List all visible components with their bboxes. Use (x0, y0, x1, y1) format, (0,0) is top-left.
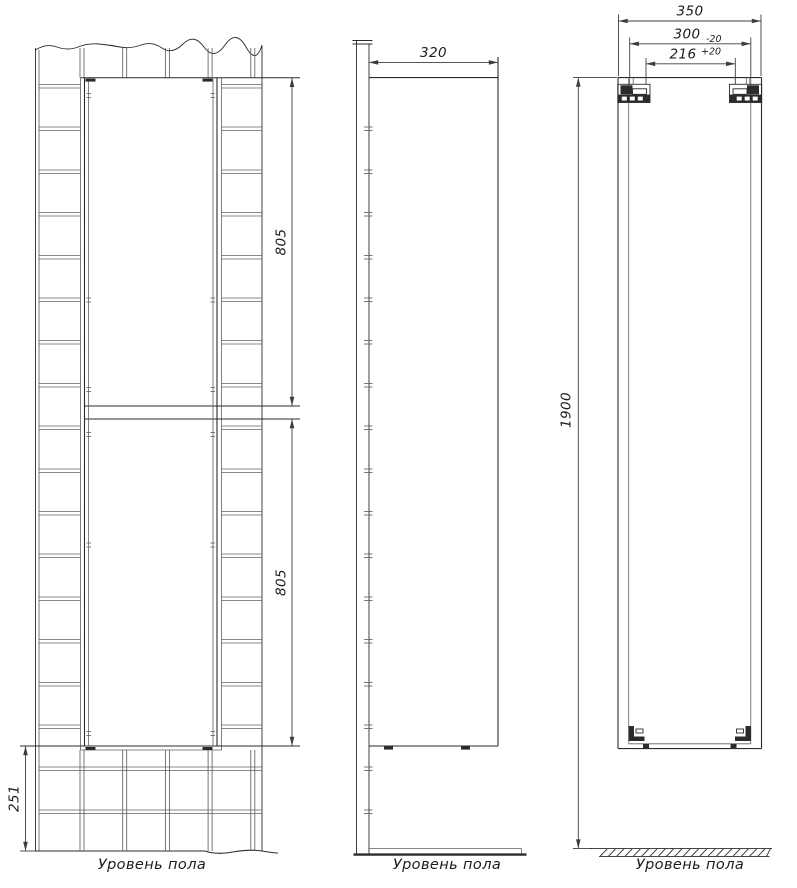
wall-break-line-top (36, 37, 263, 55)
door-top-right-plate (203, 79, 213, 82)
back-view: 350 300 -20 216 +20 1900 (559, 4, 773, 874)
technical-drawing: 805 805 251 Уровень пола (0, 0, 797, 888)
joint-line (666, 849, 674, 857)
dim-tolerance-216: +20 (701, 47, 721, 58)
body-bottom-mark-left (384, 746, 393, 749)
door-top-left-plate (86, 79, 96, 82)
door-bottom-right-plate (203, 747, 213, 750)
floor-level-label-side: Уровень пола (393, 857, 501, 873)
joint-line (625, 849, 633, 857)
cabinet-back-body (618, 78, 762, 749)
dim-label-805-lower: 805 (274, 569, 290, 596)
joint-line (683, 849, 691, 857)
joint-line (733, 849, 741, 857)
dim-label-320: 320 (420, 45, 447, 61)
cad-drawing-canvas: 805 805 251 Уровень пола (0, 0, 797, 888)
joint-line (700, 849, 708, 857)
side-view: 320 Уровень пола (353, 41, 527, 874)
floor-side-profile (354, 849, 527, 855)
cabinet-doors (20, 78, 300, 750)
dim-tolerance-300: -20 (706, 34, 722, 45)
joint-line (725, 849, 733, 857)
dimension-251: 251 (7, 746, 36, 851)
bottom-bracket-right (731, 726, 752, 749)
dim-label-300: 300 (674, 27, 701, 43)
dim-label-251: 251 (7, 785, 23, 812)
door-hinge-marks (87, 94, 216, 736)
joint-line (617, 849, 625, 857)
joint-line (691, 849, 699, 857)
joint-line (658, 849, 666, 857)
cabinet-side-body (369, 57, 498, 750)
hanger-bracket-left (618, 78, 650, 103)
joint-line (675, 849, 683, 857)
dim-label-805-upper: 805 (274, 229, 290, 256)
tile-horizontal-joints (39, 85, 262, 814)
floor-level-label-front: Уровень пола (98, 857, 206, 873)
dim-label-350: 350 (677, 4, 704, 20)
tile-vertical-joints (80, 48, 255, 851)
joint-line (600, 849, 608, 857)
dim-label-216: 216 (670, 47, 697, 63)
joint-line (608, 849, 616, 857)
joint-line (749, 849, 757, 857)
joint-line (650, 849, 658, 857)
bottom-bracket-left (629, 726, 650, 749)
dimension-1900: 1900 (559, 78, 618, 849)
tiled-wall (36, 37, 279, 853)
dimension-805-lower: 805 (274, 419, 295, 746)
tile-joint-ticks (364, 127, 373, 814)
joint-line (767, 849, 771, 857)
dimension-216: 216 +20 (646, 47, 735, 85)
joint-line (758, 849, 766, 857)
wall-side-profile (353, 41, 373, 855)
floor-hatch (590, 849, 772, 857)
joint-line (708, 849, 716, 857)
dimension-805-upper: 805 (274, 78, 295, 406)
floor-level-label-back: Уровень пола (636, 857, 744, 873)
joint-line (642, 849, 650, 857)
body-bottom-mark-right (461, 746, 470, 749)
dim-label-1900: 1900 (559, 392, 575, 428)
wall-floor-line (36, 850, 279, 853)
floor-hatch-strokes (600, 849, 771, 857)
door-bottom-left-plate (86, 747, 96, 750)
front-view: 805 805 251 Уровень пола (7, 37, 301, 873)
joint-line (716, 849, 724, 857)
joint-line (741, 849, 749, 857)
dimension-320: 320 (369, 45, 498, 65)
joint-line (633, 849, 641, 857)
hanger-bracket-right (730, 78, 762, 103)
